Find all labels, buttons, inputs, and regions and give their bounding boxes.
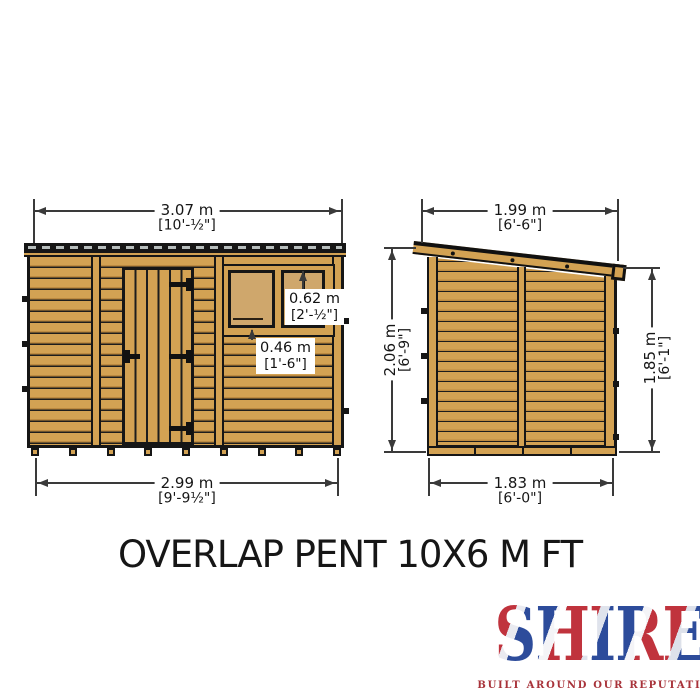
page-title: OVERLAP PENT 10X6 M FT xyxy=(118,533,582,576)
extension-line xyxy=(619,451,660,453)
board-end-tab xyxy=(421,308,427,314)
board-end-tab xyxy=(421,353,427,359)
extension-line xyxy=(384,247,416,249)
bearer-joint xyxy=(474,448,476,454)
bearer-foot xyxy=(295,448,303,456)
side-floor-bearer xyxy=(427,446,617,456)
window-pane-fixed xyxy=(228,270,275,328)
arrow-up-icon xyxy=(299,271,307,281)
extension-line xyxy=(623,267,660,269)
arrow-left-icon xyxy=(38,479,48,487)
bearer-foot xyxy=(258,448,266,456)
bearer-foot xyxy=(69,448,77,456)
arrow-right-icon xyxy=(600,479,610,487)
dimension-value: 0.62 m xyxy=(289,291,340,307)
roof-nail-icon xyxy=(451,251,455,255)
dimension-value-imperial: [10'-½"] xyxy=(154,219,220,234)
bearer-foot xyxy=(182,448,190,456)
board-end-tab xyxy=(343,408,349,414)
extension-line xyxy=(421,199,423,243)
side-corner-trim-left xyxy=(427,257,438,448)
bearer-foot xyxy=(107,448,115,456)
dimension-value-imperial: [2'-½"] xyxy=(289,307,340,323)
arrow-down-icon xyxy=(648,440,656,450)
dimension-value: 0.46 m xyxy=(260,340,311,356)
door-latch-icon xyxy=(125,354,140,359)
board-end-tab xyxy=(22,341,28,347)
extension-line xyxy=(33,199,35,243)
board-end-tab xyxy=(613,434,619,440)
door-hinge-icon xyxy=(169,354,191,359)
arrow-right-icon xyxy=(325,479,335,487)
brand-logo: SHIRE BUILT AROUND OUR REPUTATION xyxy=(490,596,700,656)
extension-line xyxy=(337,458,339,496)
door-hinge-icon xyxy=(169,426,191,431)
arrow-left-icon xyxy=(424,207,434,215)
arrow-up-icon xyxy=(388,250,396,260)
window-dimension-label: 0.62 m [2'-½"] xyxy=(285,289,344,325)
shed-door xyxy=(122,267,194,445)
arrow-left-icon xyxy=(431,479,441,487)
dimension-value-imperial: [9'-9½"] xyxy=(154,492,220,507)
roof-nail-icon xyxy=(510,258,514,262)
arrow-right-icon xyxy=(329,207,339,215)
dimension-value-imperial: [6'-1"] xyxy=(658,328,673,389)
side-trim-batten-middle xyxy=(517,267,526,448)
dimension-label-rotated: 2.06 m [6'-9"] xyxy=(383,320,413,381)
board-end-tab xyxy=(22,386,28,392)
extension-line xyxy=(341,199,343,243)
extension-line xyxy=(428,458,430,496)
bearer-foot xyxy=(220,448,228,456)
shed-technical-drawing: 3.07 m [10'-½"] 1.99 m [6'-6"] 0.62 m [2… xyxy=(0,0,700,700)
bearer-foot xyxy=(144,448,152,456)
bearer-foot xyxy=(31,448,39,456)
board-end-tab xyxy=(421,398,427,404)
front-trim-batten-left xyxy=(91,257,101,445)
dimension-value-imperial: [6'-6"] xyxy=(494,219,546,234)
dimension-label-rotated: 1.85 m [6'-1"] xyxy=(643,328,673,389)
dimension-value: 3.07 m xyxy=(155,202,220,218)
extension-line xyxy=(617,199,619,261)
dimension-value-imperial: [6'-0"] xyxy=(494,492,546,507)
roof-nail-icon xyxy=(565,264,569,268)
brand-tagline: BUILT AROUND OUR REPUTATION xyxy=(477,680,700,691)
front-roof-edge xyxy=(24,243,346,257)
window-sill xyxy=(233,318,263,320)
arrow-up-icon xyxy=(648,270,656,280)
side-corner-trim-right xyxy=(604,276,616,448)
bearer-joint xyxy=(522,448,524,454)
dimension-value: 1.99 m xyxy=(488,202,553,218)
arrow-up-icon xyxy=(248,329,256,339)
arrow-down-icon xyxy=(388,440,396,450)
dimension-value: 2.99 m xyxy=(155,475,220,491)
bearer-foot xyxy=(333,448,341,456)
roof-felt-dashes xyxy=(28,246,342,249)
brand-name: SHIRE xyxy=(494,596,700,673)
board-end-tab xyxy=(613,381,619,387)
bearer-joint xyxy=(570,448,572,454)
extension-line xyxy=(35,458,37,496)
window-dimension-label: 0.46 m [1'-6"] xyxy=(256,338,315,374)
dimension-value: 2.06 m xyxy=(383,320,398,381)
dimension-value-imperial: [1'-6"] xyxy=(260,356,311,372)
extension-line xyxy=(612,458,614,496)
board-end-tab xyxy=(22,296,28,302)
dimension-value: 1.85 m xyxy=(643,328,658,389)
board-end-tab xyxy=(613,328,619,334)
front-floor-bearers xyxy=(31,448,341,456)
arrow-left-icon xyxy=(36,207,46,215)
door-hinge-icon xyxy=(169,282,191,287)
dimension-value: 1.83 m xyxy=(488,475,553,491)
dimension-value-imperial: [6'-9"] xyxy=(398,320,413,381)
arrow-right-icon xyxy=(605,207,615,215)
